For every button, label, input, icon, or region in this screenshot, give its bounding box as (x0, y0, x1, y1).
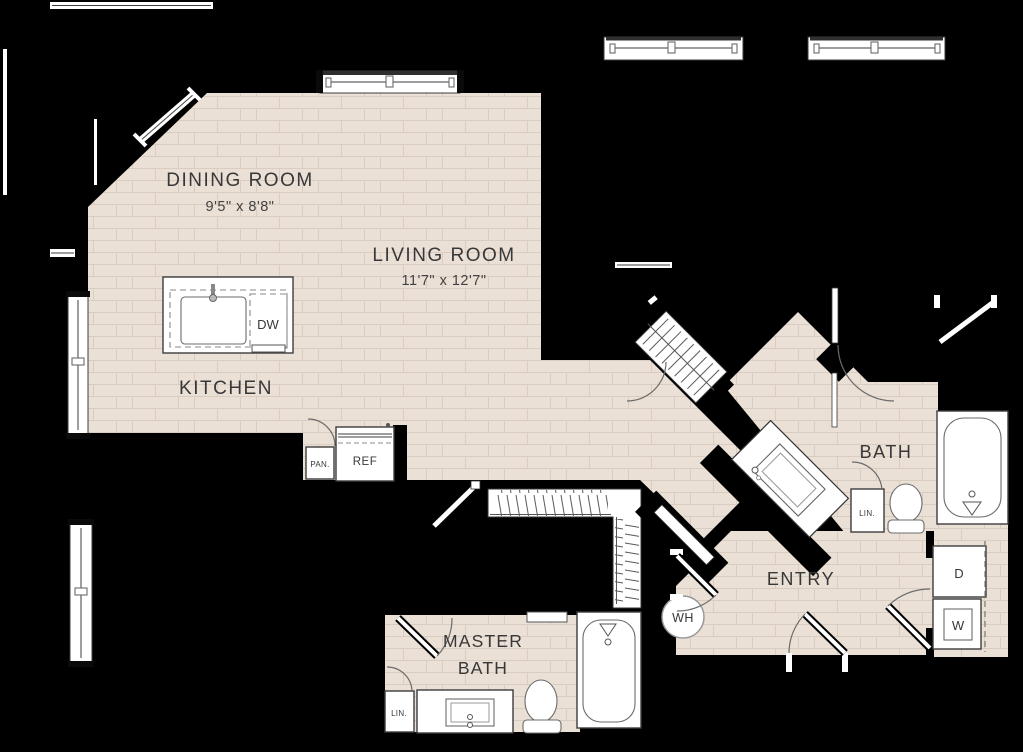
window-neighbor-1 (604, 37, 743, 60)
master-tub (577, 612, 641, 728)
window-left-upper (66, 291, 90, 439)
living-room-dims: 11'7" x 12'7" (402, 273, 487, 289)
bath-tub (937, 411, 1008, 524)
floor-plan-svg: DW PAN. REF (0, 0, 1023, 752)
bath-toilet (888, 484, 924, 533)
window-left-lower (68, 519, 94, 667)
dryer-label: D (954, 566, 963, 581)
water-heater-label: WH (672, 611, 694, 625)
dining-room-label: DINING ROOM (166, 170, 313, 191)
wall-stub-small (50, 249, 75, 257)
window-living-top (316, 70, 464, 93)
bath-label: BATH (860, 442, 913, 462)
living-room-label: LIVING ROOM (372, 245, 515, 266)
dining-room-dims: 9'5" x 8'8" (206, 199, 275, 215)
wall-left-upper-line (3, 49, 7, 195)
refrigerator: REF (336, 423, 394, 481)
bath-linen-label: LIN. (859, 509, 875, 518)
wall-stub-vertical (94, 119, 97, 185)
kitchen-label: KITCHEN (179, 378, 273, 399)
entry-label: ENTRY (767, 569, 835, 589)
refrigerator-label: REF (353, 456, 378, 468)
floor-plan-page: DW PAN. REF (0, 0, 1023, 752)
dishwasher-label: DW (257, 317, 279, 332)
master-linen-label: LIN. (391, 709, 407, 718)
water-heater: WH (662, 596, 704, 638)
master-bath-label-2: BATH (458, 658, 508, 678)
kitchen-sink (181, 297, 246, 344)
laundry-units: D W (933, 541, 986, 652)
washer-label: W (952, 618, 965, 633)
master-bath-label-1: MASTER (443, 631, 523, 651)
pantry-label: PAN. (310, 460, 329, 469)
window-top-left (50, 2, 213, 9)
window-neighbor-2 (808, 37, 945, 60)
kitchen-island: DW (163, 277, 293, 353)
